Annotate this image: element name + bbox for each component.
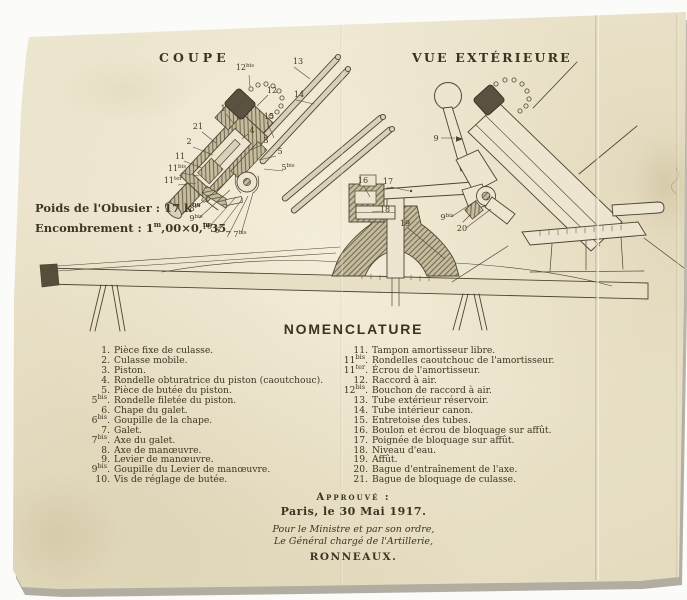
- leader-dot: [410, 190, 412, 192]
- leader-line: [241, 193, 253, 234]
- callout-number: 11ter: [164, 176, 183, 185]
- approved-label: Approuvé :: [10, 492, 687, 503]
- technical-drawing: 12bis1213141512121111bis11ter4355bis89bi…: [0, 0, 687, 340]
- dimensions-spec: Encombrement : 1m,00×0,m35: [35, 218, 226, 238]
- callout-number: 4: [249, 126, 254, 135]
- callout-number: 11: [175, 152, 185, 161]
- coupe-section-title: COUPE: [159, 50, 230, 65]
- nomenclature-title: NOMENCLATURE: [10, 321, 687, 337]
- approval-block: Approuvé : Paris, le 30 Mai 1917. Pour l…: [10, 492, 687, 563]
- callout-number: 12: [267, 86, 277, 95]
- vue-section-title: VUE EXTÉRIEURE: [412, 50, 572, 65]
- callout-number: 9bis: [440, 213, 453, 222]
- specs-block: Poids de l'Obusier : 17 kos Encombrement…: [35, 198, 226, 238]
- leader-line: [202, 132, 216, 143]
- callout-number: 13: [293, 57, 303, 66]
- callout-number: 15: [264, 112, 274, 121]
- callout-number: 7bis: [233, 230, 246, 239]
- leader-line: [264, 169, 283, 171]
- parts-column-right: 11.Tampon amortisseur libre.11bis.Rondel…: [336, 346, 636, 485]
- part-item: 10.Vis de réglage de butée.: [78, 475, 340, 485]
- callout-number: 20: [457, 224, 467, 233]
- callout-number: 16: [358, 176, 368, 185]
- coupe-drawing: [156, 54, 480, 306]
- parts-column-left: 1.Pièce fixe de culasse.2.Culasse mobile…: [78, 346, 340, 485]
- callout-number: 9: [433, 134, 438, 143]
- weight-spec: Poids de l'Obusier : 17 kos: [35, 198, 226, 218]
- callout-number: 5: [277, 147, 282, 156]
- leader-line: [294, 67, 310, 79]
- callout-number: 14: [294, 90, 304, 99]
- approval-minister-line: Pour le Ministre et par son ordre,: [10, 524, 687, 536]
- document-page: 12bis1213141512121111bis11ter4355bis89bi…: [0, 0, 687, 600]
- callout-number: 19: [400, 219, 410, 228]
- callout-number: 18: [380, 205, 390, 214]
- callout-number: 3: [263, 136, 268, 145]
- part-item: 21.Bague de bloquage de culasse.: [336, 475, 636, 485]
- callout-number: 21: [193, 122, 203, 131]
- scanned-photo: 12bis1213141512121111bis11ter4355bis89bi…: [0, 0, 687, 600]
- callout-number: 2: [186, 137, 191, 146]
- approval-signature: RONNEAUX.: [10, 551, 687, 563]
- leader-line: [249, 75, 250, 87]
- callout-number: 5bis: [281, 163, 294, 172]
- callout-number: 17: [383, 177, 393, 186]
- callout-number: 1: [220, 104, 225, 113]
- leader-line: [257, 95, 268, 106]
- approval-general-line: Le Général chargé de l'Artillerie,: [10, 536, 687, 548]
- callout-number: 12bis: [236, 63, 254, 72]
- vue-drawing: [435, 62, 685, 282]
- approval-place-date: Paris, le 30 Mai 1917.: [10, 505, 687, 518]
